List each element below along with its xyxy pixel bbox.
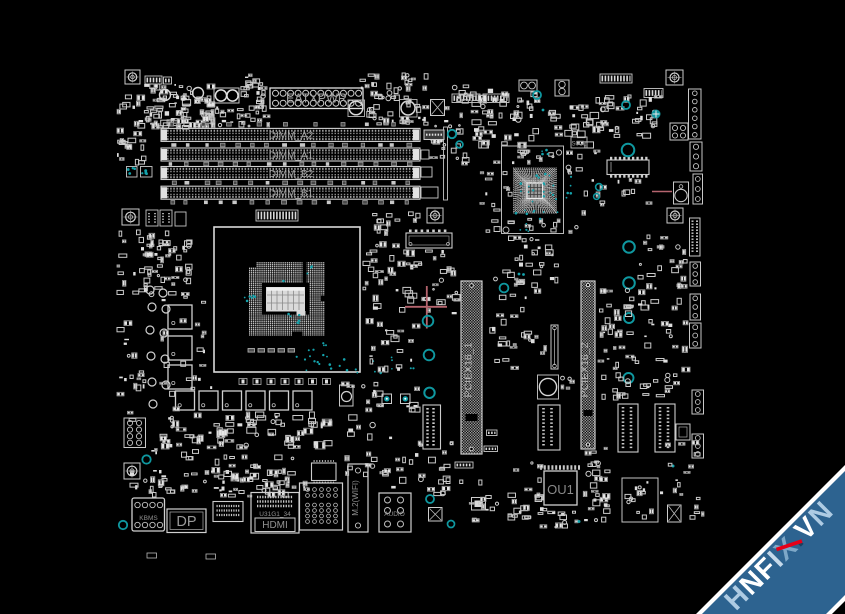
svg-text:S0C1: S0C1: [571, 142, 587, 148]
svg-text:DIMM_A1: DIMM_A1: [269, 150, 314, 161]
svg-text:EATXPWR: EATXPWR: [286, 92, 347, 106]
svg-text:PCIEX16_2: PCIEX16_2: [579, 342, 591, 397]
svg-text:KBMS: KBMS: [139, 515, 158, 522]
svg-text:AUDIO: AUDIO: [384, 511, 405, 518]
svg-text:DIMM_B1: DIMM_B1: [269, 189, 314, 200]
svg-text:HDMI: HDMI: [262, 520, 288, 531]
svg-text:M.2(WIFI): M.2(WIFI): [351, 480, 360, 516]
svg-text:DP: DP: [176, 514, 196, 530]
svg-text:U31G1_34: U31G1_34: [259, 511, 291, 518]
svg-text:DIMM_A2: DIMM_A2: [269, 131, 314, 142]
svg-text:OU1: OU1: [547, 482, 574, 497]
svg-text:DIMM_B2: DIMM_B2: [269, 169, 314, 180]
svg-text:PCIEX16_1: PCIEX16_1: [463, 342, 475, 397]
